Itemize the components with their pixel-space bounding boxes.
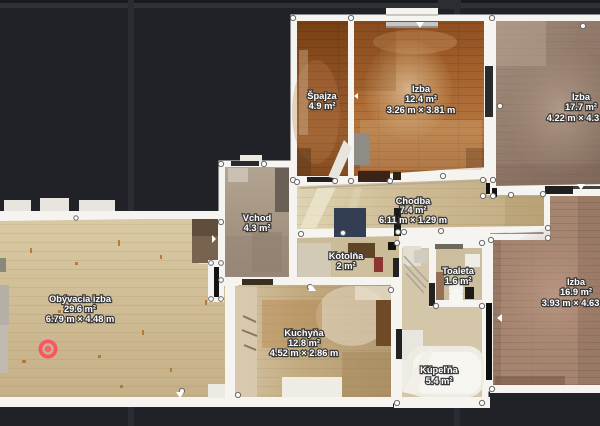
- svg-text:Izba: Izba: [572, 92, 591, 102]
- svg-text:29.6 m²: 29.6 m²: [64, 304, 96, 314]
- svg-text:4.9 m²: 4.9 m²: [309, 101, 336, 111]
- svg-text:Izba: Izba: [412, 84, 431, 94]
- svg-text:Kotolňa: Kotolňa: [329, 251, 364, 261]
- svg-text:Kúpeľňa: Kúpeľňa: [420, 365, 459, 375]
- svg-text:16.9 m²: 16.9 m²: [560, 287, 592, 297]
- svg-text:4.52 m × 2.86 m: 4.52 m × 2.86 m: [270, 348, 338, 358]
- svg-text:6.11 m × 1.29 m: 6.11 m × 1.29 m: [379, 215, 447, 225]
- svg-text:5.4 m²: 5.4 m²: [426, 376, 453, 386]
- svg-text:12.4 m²: 12.4 m²: [405, 94, 437, 104]
- svg-text:6.79 m × 4.48 m: 6.79 m × 4.48 m: [46, 314, 114, 324]
- svg-text:3.26 m × 3.81 m: 3.26 m × 3.81 m: [387, 105, 455, 115]
- svg-text:Izba: Izba: [567, 277, 586, 287]
- svg-text:Toaleta: Toaleta: [442, 266, 475, 276]
- svg-text:1.6 m²: 1.6 m²: [445, 276, 472, 286]
- svg-text:3.93 m × 4.63 m: 3.93 m × 4.63 m: [542, 298, 600, 308]
- svg-text:2 m²: 2 m²: [336, 261, 355, 271]
- svg-text:Vchod: Vchod: [243, 213, 272, 223]
- svg-text:Obývacia izba: Obývacia izba: [49, 294, 112, 304]
- svg-text:Špajza: Špajza: [307, 90, 337, 101]
- svg-text:7.4 m²: 7.4 m²: [400, 205, 427, 215]
- svg-text:4.22 m × 4.31 m: 4.22 m × 4.31 m: [547, 113, 600, 123]
- svg-text:Kuchyňa: Kuchyňa: [284, 328, 324, 338]
- svg-text:12.8 m²: 12.8 m²: [288, 338, 320, 348]
- svg-text:4.3 m²: 4.3 m²: [244, 223, 271, 233]
- svg-text:17.7 m²: 17.7 m²: [565, 102, 597, 112]
